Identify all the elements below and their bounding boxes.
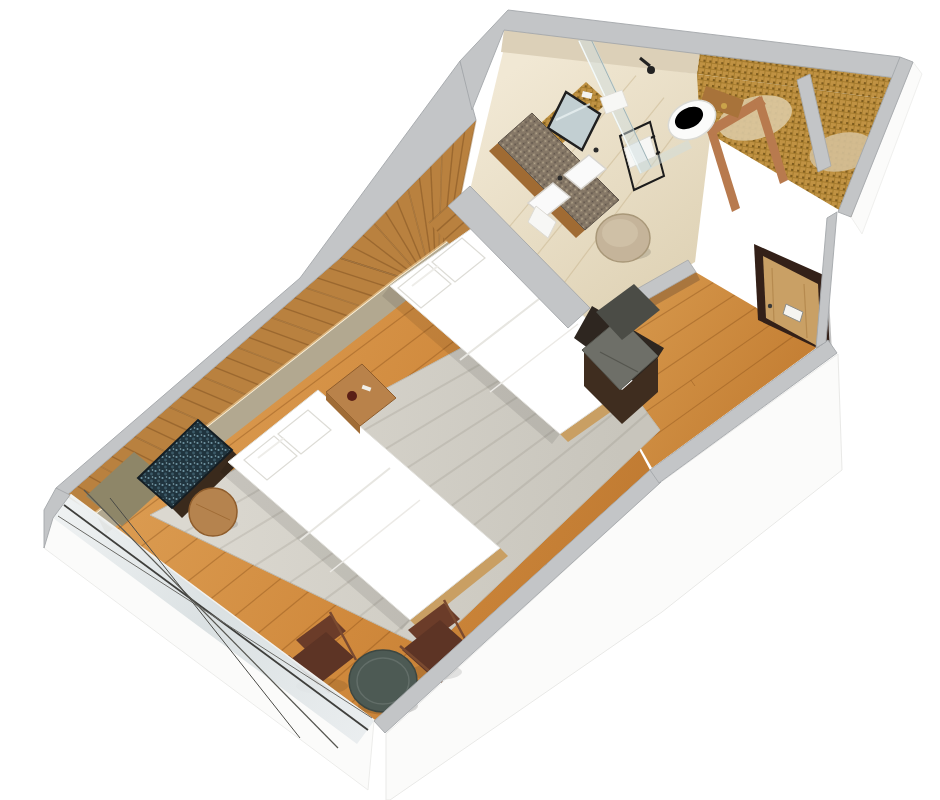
shower-head (647, 66, 655, 74)
round-ottoman (596, 214, 651, 262)
faucet (558, 176, 563, 181)
faucet (594, 148, 599, 153)
door-handle (768, 304, 772, 308)
round-side-stool (189, 488, 238, 536)
floor-plan-render (0, 0, 940, 800)
clock (347, 391, 357, 401)
flush-button (721, 103, 727, 109)
floor-plan-canvas (0, 0, 940, 800)
ottoman-top (602, 219, 638, 247)
